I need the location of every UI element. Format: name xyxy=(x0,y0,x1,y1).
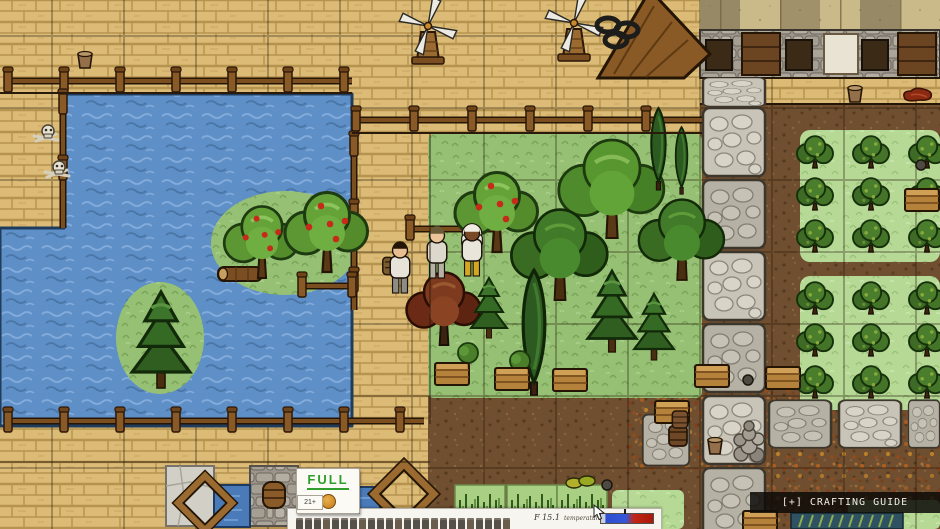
crate[interactable] xyxy=(743,511,777,529)
mouse-cursor xyxy=(593,504,607,525)
bucket[interactable] xyxy=(708,438,722,455)
fence-post[interactable] xyxy=(59,67,69,92)
road-tile[interactable] xyxy=(703,78,765,107)
food-pip xyxy=(305,518,312,529)
food-bonus-badge: 21+ xyxy=(297,495,323,510)
food-pip xyxy=(386,518,393,529)
fence[interactable] xyxy=(58,89,68,228)
fence-post[interactable] xyxy=(283,67,293,92)
food-meter-pips xyxy=(296,518,510,529)
food-pip xyxy=(440,518,447,529)
road-tile[interactable] xyxy=(703,108,765,176)
food-pip xyxy=(422,518,429,529)
food-pip xyxy=(467,518,474,529)
food-pip xyxy=(377,518,384,529)
game-world xyxy=(0,0,940,529)
shutter-panel[interactable] xyxy=(898,33,936,75)
crate[interactable] xyxy=(766,367,800,389)
fence-post[interactable] xyxy=(59,407,69,432)
round-item[interactable] xyxy=(743,375,753,385)
round-item[interactable] xyxy=(602,480,612,490)
fence-post[interactable] xyxy=(351,106,361,131)
crate[interactable] xyxy=(553,369,587,391)
fence-post[interactable] xyxy=(115,407,125,432)
fence-post[interactable] xyxy=(115,67,125,92)
fence-post[interactable] xyxy=(171,67,181,92)
fence-post[interactable] xyxy=(339,67,349,92)
crate[interactable] xyxy=(905,189,939,211)
fence-post[interactable] xyxy=(583,106,593,131)
food-pip xyxy=(503,518,510,529)
crafting-guide-toggle[interactable]: [+] CRAFTING GUIDE xyxy=(750,492,940,513)
crate[interactable] xyxy=(435,363,469,385)
bucket[interactable] xyxy=(78,52,92,69)
food-pip xyxy=(458,518,465,529)
round-item[interactable] xyxy=(916,160,926,170)
fence-post[interactable] xyxy=(3,407,13,432)
food-pip xyxy=(359,518,366,529)
food-pip xyxy=(323,518,330,529)
food-pip xyxy=(341,518,348,529)
fence-post[interactable] xyxy=(283,407,293,432)
road-tile[interactable] xyxy=(703,252,765,320)
food-pip xyxy=(350,518,357,529)
full-label: FULL xyxy=(307,472,348,490)
fps-readout: F 15.1 xyxy=(534,513,560,522)
food-pip xyxy=(476,518,483,529)
fence-post[interactable] xyxy=(297,272,307,297)
temperature-bar xyxy=(600,513,654,524)
road-tile[interactable] xyxy=(909,400,940,448)
reeds[interactable] xyxy=(791,513,903,529)
fence-post[interactable] xyxy=(3,67,13,92)
window[interactable] xyxy=(786,40,812,70)
fence-post[interactable] xyxy=(405,215,415,240)
window[interactable] xyxy=(862,40,888,70)
fence-post[interactable] xyxy=(395,407,405,432)
fence-post[interactable] xyxy=(227,407,237,432)
food-pip xyxy=(395,518,402,529)
food-pip xyxy=(368,518,375,529)
barrel-stack[interactable] xyxy=(669,411,688,446)
fence-post[interactable] xyxy=(409,106,419,131)
food-pip xyxy=(485,518,492,529)
fence-post[interactable] xyxy=(525,106,535,131)
food-pip xyxy=(404,518,411,529)
fence-post[interactable] xyxy=(227,67,237,92)
small-bush[interactable] xyxy=(458,343,478,363)
road-tile[interactable] xyxy=(769,400,831,448)
food-pip xyxy=(449,518,456,529)
fence-post[interactable] xyxy=(467,106,477,131)
fence-post[interactable] xyxy=(641,106,651,131)
food-pip xyxy=(494,518,501,529)
fence-post[interactable] xyxy=(349,131,359,156)
food-pip xyxy=(413,518,420,529)
crate[interactable] xyxy=(695,365,729,387)
food-pip xyxy=(431,518,438,529)
game-viewport[interactable]: FULL 21+ FOOD METER +21 F 15.1 temperatu… xyxy=(0,0,940,529)
log[interactable] xyxy=(218,267,262,281)
food-pip xyxy=(314,518,321,529)
fence-post[interactable] xyxy=(339,407,349,432)
fence-post[interactable] xyxy=(171,407,181,432)
food-pip xyxy=(296,518,303,529)
road-tile[interactable] xyxy=(839,400,901,448)
fence-post[interactable] xyxy=(347,272,357,297)
light-panel[interactable] xyxy=(824,34,858,74)
temperature-marker xyxy=(624,508,626,514)
crate[interactable] xyxy=(495,368,529,390)
bucket[interactable] xyxy=(848,86,862,103)
shutter-panel[interactable] xyxy=(742,33,780,75)
food-pip xyxy=(332,518,339,529)
